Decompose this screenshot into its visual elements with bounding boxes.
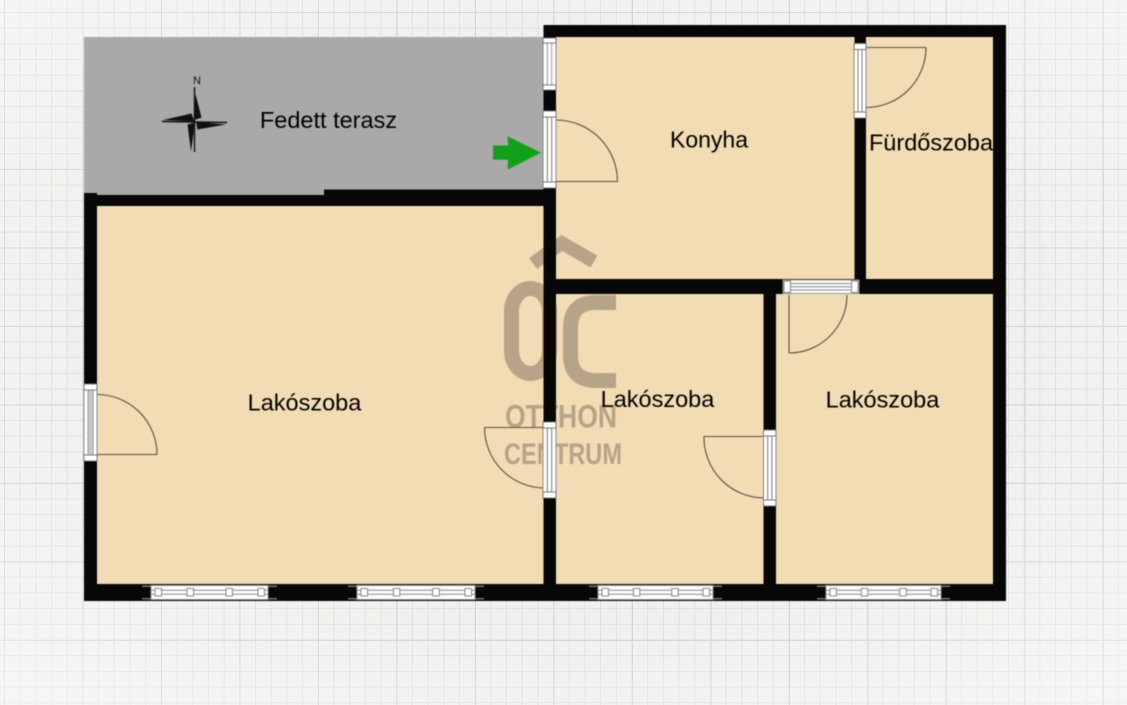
svg-text:Fedett terasz: Fedett terasz <box>260 107 397 133</box>
svg-text:CENTRUM: CENTRUM <box>504 437 622 470</box>
svg-text:Fürdőszoba: Fürdőszoba <box>869 130 994 156</box>
svg-text:N: N <box>193 75 201 87</box>
svg-text:Lakószoba: Lakószoba <box>601 386 716 412</box>
svg-text:Konyha: Konyha <box>670 127 748 153</box>
svg-text:Lakószoba: Lakószoba <box>826 387 941 413</box>
svg-text:Lakószoba: Lakószoba <box>248 390 363 416</box>
